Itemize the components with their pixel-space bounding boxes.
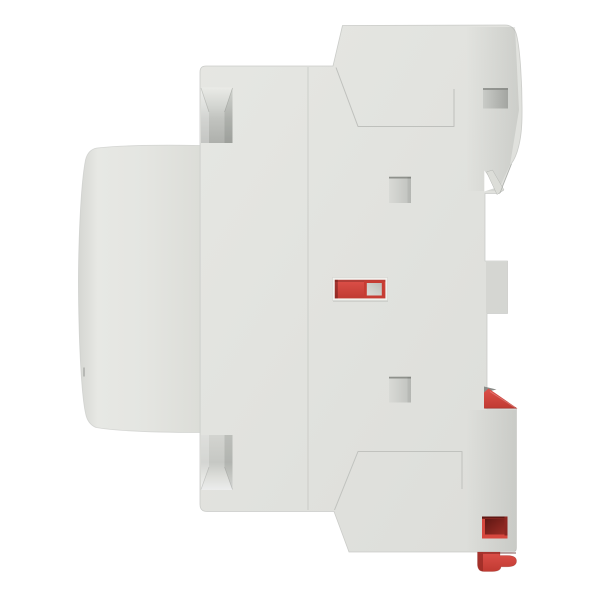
clip-window-top-edge xyxy=(482,517,508,519)
vent-hole-upper xyxy=(389,177,411,204)
clip-window-right-edge xyxy=(505,517,508,536)
vent-hole-upper-shadow xyxy=(408,177,412,203)
indicator-left-shadow xyxy=(335,280,338,299)
vent-hole-lower-shadow xyxy=(408,377,412,403)
front-edge-tick xyxy=(83,368,85,377)
din-clip-lower-top-shadow xyxy=(483,552,516,554)
indicator-square-gray xyxy=(367,283,382,296)
status-indicator xyxy=(333,278,389,303)
vent-hole-lower xyxy=(389,377,411,403)
terminal-slot-bottom xyxy=(201,435,233,490)
contactor-side-view xyxy=(0,0,600,600)
vent-hole-top-right xyxy=(483,88,508,109)
product-photo xyxy=(0,0,600,600)
shading-right-step xyxy=(486,262,507,313)
front-panel xyxy=(78,145,200,432)
clip-window-cavity xyxy=(485,519,505,535)
vent-hole-top-right-cavity xyxy=(483,88,508,109)
clip-window xyxy=(482,517,508,539)
terminal-slot-top xyxy=(201,88,233,144)
